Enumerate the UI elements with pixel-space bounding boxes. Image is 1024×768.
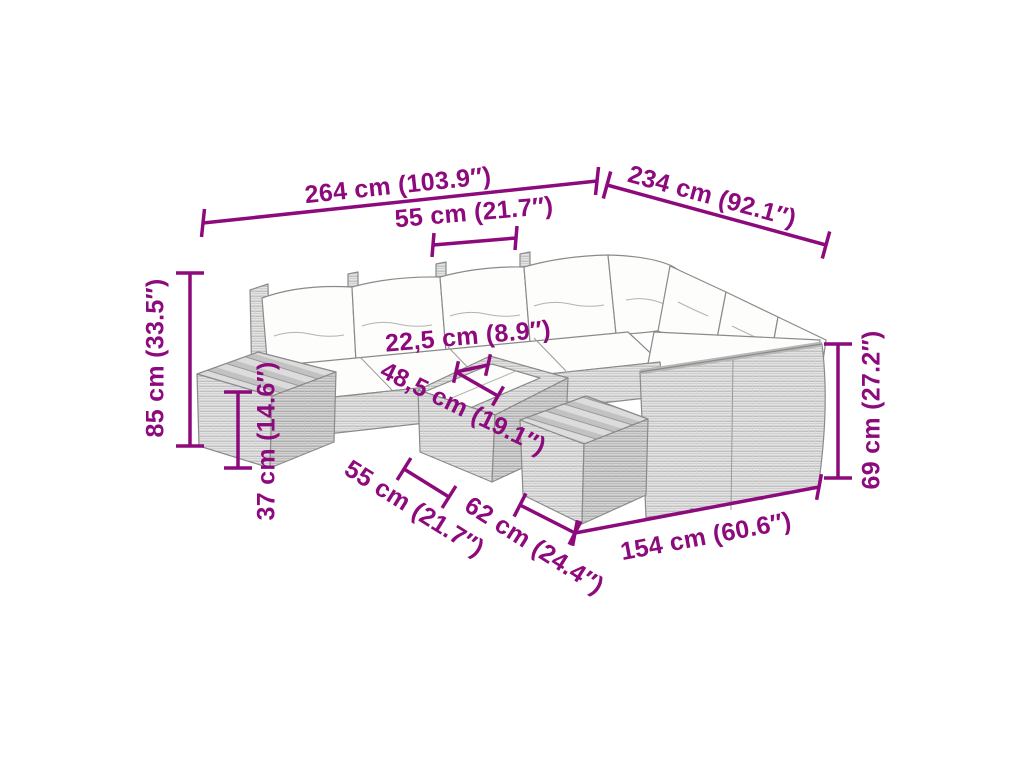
dimension-label-side-table-height: 37 cm (14.6″): [255, 361, 280, 520]
dimension-label-overall-height: 85 cm (33.5″): [144, 278, 169, 437]
dimension-label-backrest-height: 69 cm (27.2″): [860, 330, 885, 489]
sofa-illustration: [197, 252, 826, 524]
dim-seat-width-line: [432, 226, 517, 257]
footstool: [520, 396, 648, 524]
dim-backrest-height-line: [824, 344, 852, 478]
product-dimension-diagram: 264 cm (103.9″) 234 cm (92.1″) 55 cm (21…: [0, 0, 1024, 768]
